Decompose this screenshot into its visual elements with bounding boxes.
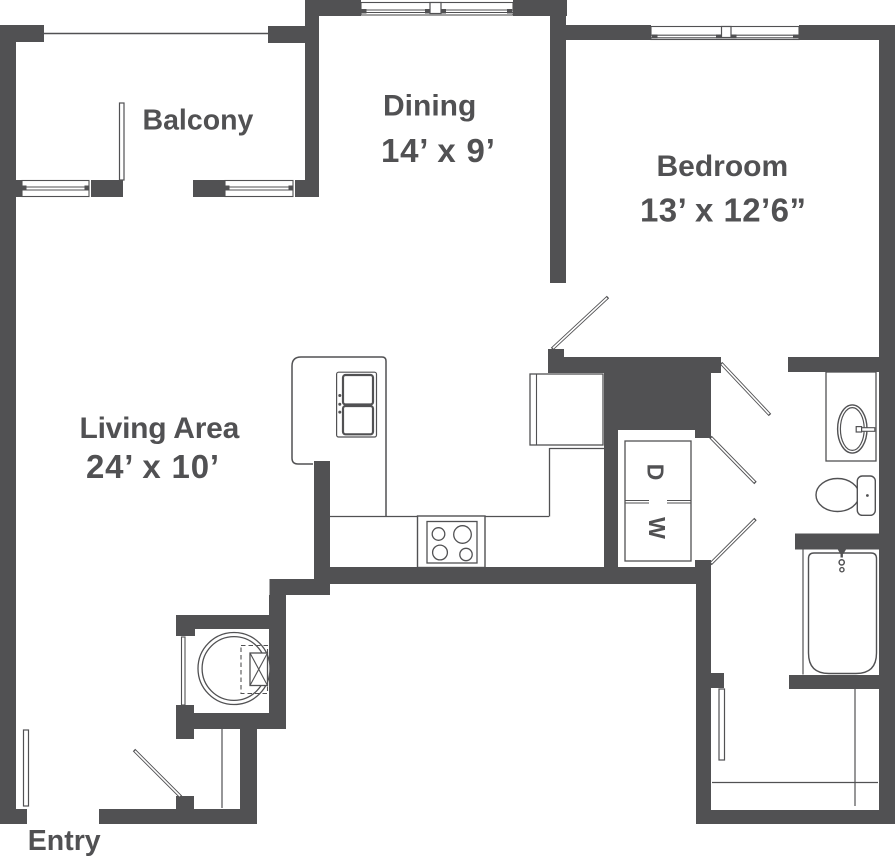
svg-text:D: D [643,464,669,481]
svg-text:Bedroom: Bedroom [657,150,789,183]
svg-text:Entry: Entry [28,825,101,857]
svg-text:13’ x 12’6”: 13’ x 12’6” [640,192,806,229]
svg-text:Living Area: Living Area [80,412,240,445]
svg-text:Balcony: Balcony [143,105,254,137]
svg-text:14’ x 9’: 14’ x 9’ [381,132,496,169]
svg-text:W: W [644,517,670,539]
svg-text:Dining: Dining [383,90,476,123]
svg-text:24’ x 10’: 24’ x 10’ [86,448,220,485]
